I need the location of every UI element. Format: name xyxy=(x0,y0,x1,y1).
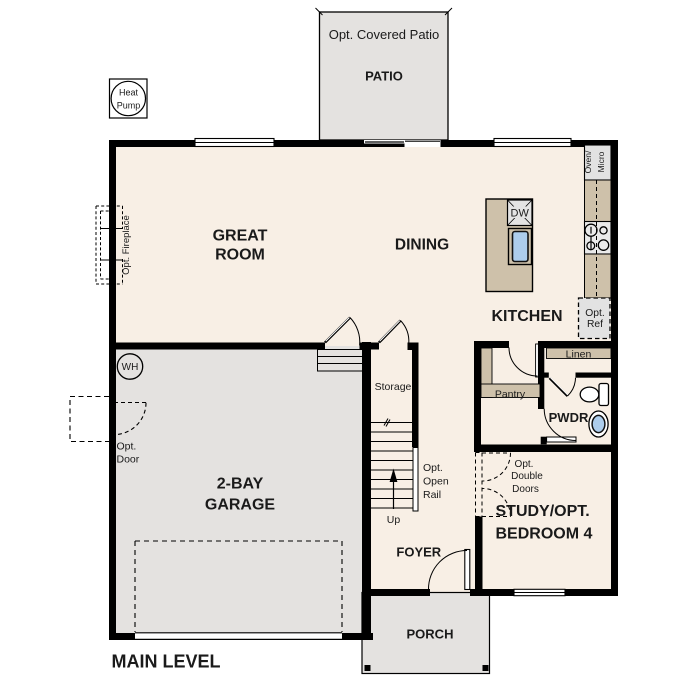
svg-text:KITCHEN: KITCHEN xyxy=(491,308,562,325)
svg-text:Double: Double xyxy=(511,471,543,482)
svg-text:Storage: Storage xyxy=(375,381,412,393)
svg-text:Doors: Doors xyxy=(512,484,539,495)
svg-text:Rail: Rail xyxy=(423,489,441,501)
svg-text:Linen: Linen xyxy=(566,349,592,361)
svg-text:PATIO: PATIO xyxy=(365,69,403,84)
svg-text:Opt.: Opt. xyxy=(117,441,137,453)
svg-text:PORCH: PORCH xyxy=(407,626,454,641)
svg-text:PWDR: PWDR xyxy=(549,410,589,425)
svg-text:Opt. Covered Patio: Opt. Covered Patio xyxy=(329,27,440,42)
svg-text:GREAT: GREAT xyxy=(213,227,268,244)
svg-text:GARAGE: GARAGE xyxy=(205,497,276,514)
svg-text:Heat: Heat xyxy=(119,88,139,98)
svg-text:Pump: Pump xyxy=(117,101,141,111)
svg-text:Micro: Micro xyxy=(596,151,606,172)
svg-text:Door: Door xyxy=(117,454,140,466)
svg-text:Oven/: Oven/ xyxy=(583,150,593,173)
svg-text:ROOM: ROOM xyxy=(215,246,265,263)
svg-text:STUDY/OPT.: STUDY/OPT. xyxy=(496,503,590,520)
svg-text:DINING: DINING xyxy=(395,237,449,254)
svg-text:Opt.: Opt. xyxy=(515,459,534,470)
svg-text:Up: Up xyxy=(387,514,401,526)
svg-text:2-BAY: 2-BAY xyxy=(217,476,264,493)
svg-text:BEDROOM 4: BEDROOM 4 xyxy=(496,526,593,543)
svg-text:Opt.: Opt. xyxy=(585,308,604,319)
svg-text:Opt. Fireplace: Opt. Fireplace xyxy=(121,215,132,275)
svg-text:MAIN LEVEL: MAIN LEVEL xyxy=(112,652,221,672)
svg-text:DW: DW xyxy=(511,208,530,220)
svg-text:Pantry: Pantry xyxy=(495,389,526,401)
svg-text:FOYER: FOYER xyxy=(396,544,441,559)
svg-text:WH: WH xyxy=(122,362,139,373)
svg-text:Opt.: Opt. xyxy=(423,462,443,474)
svg-text:Open: Open xyxy=(423,476,449,488)
svg-text:Ref: Ref xyxy=(587,319,603,330)
